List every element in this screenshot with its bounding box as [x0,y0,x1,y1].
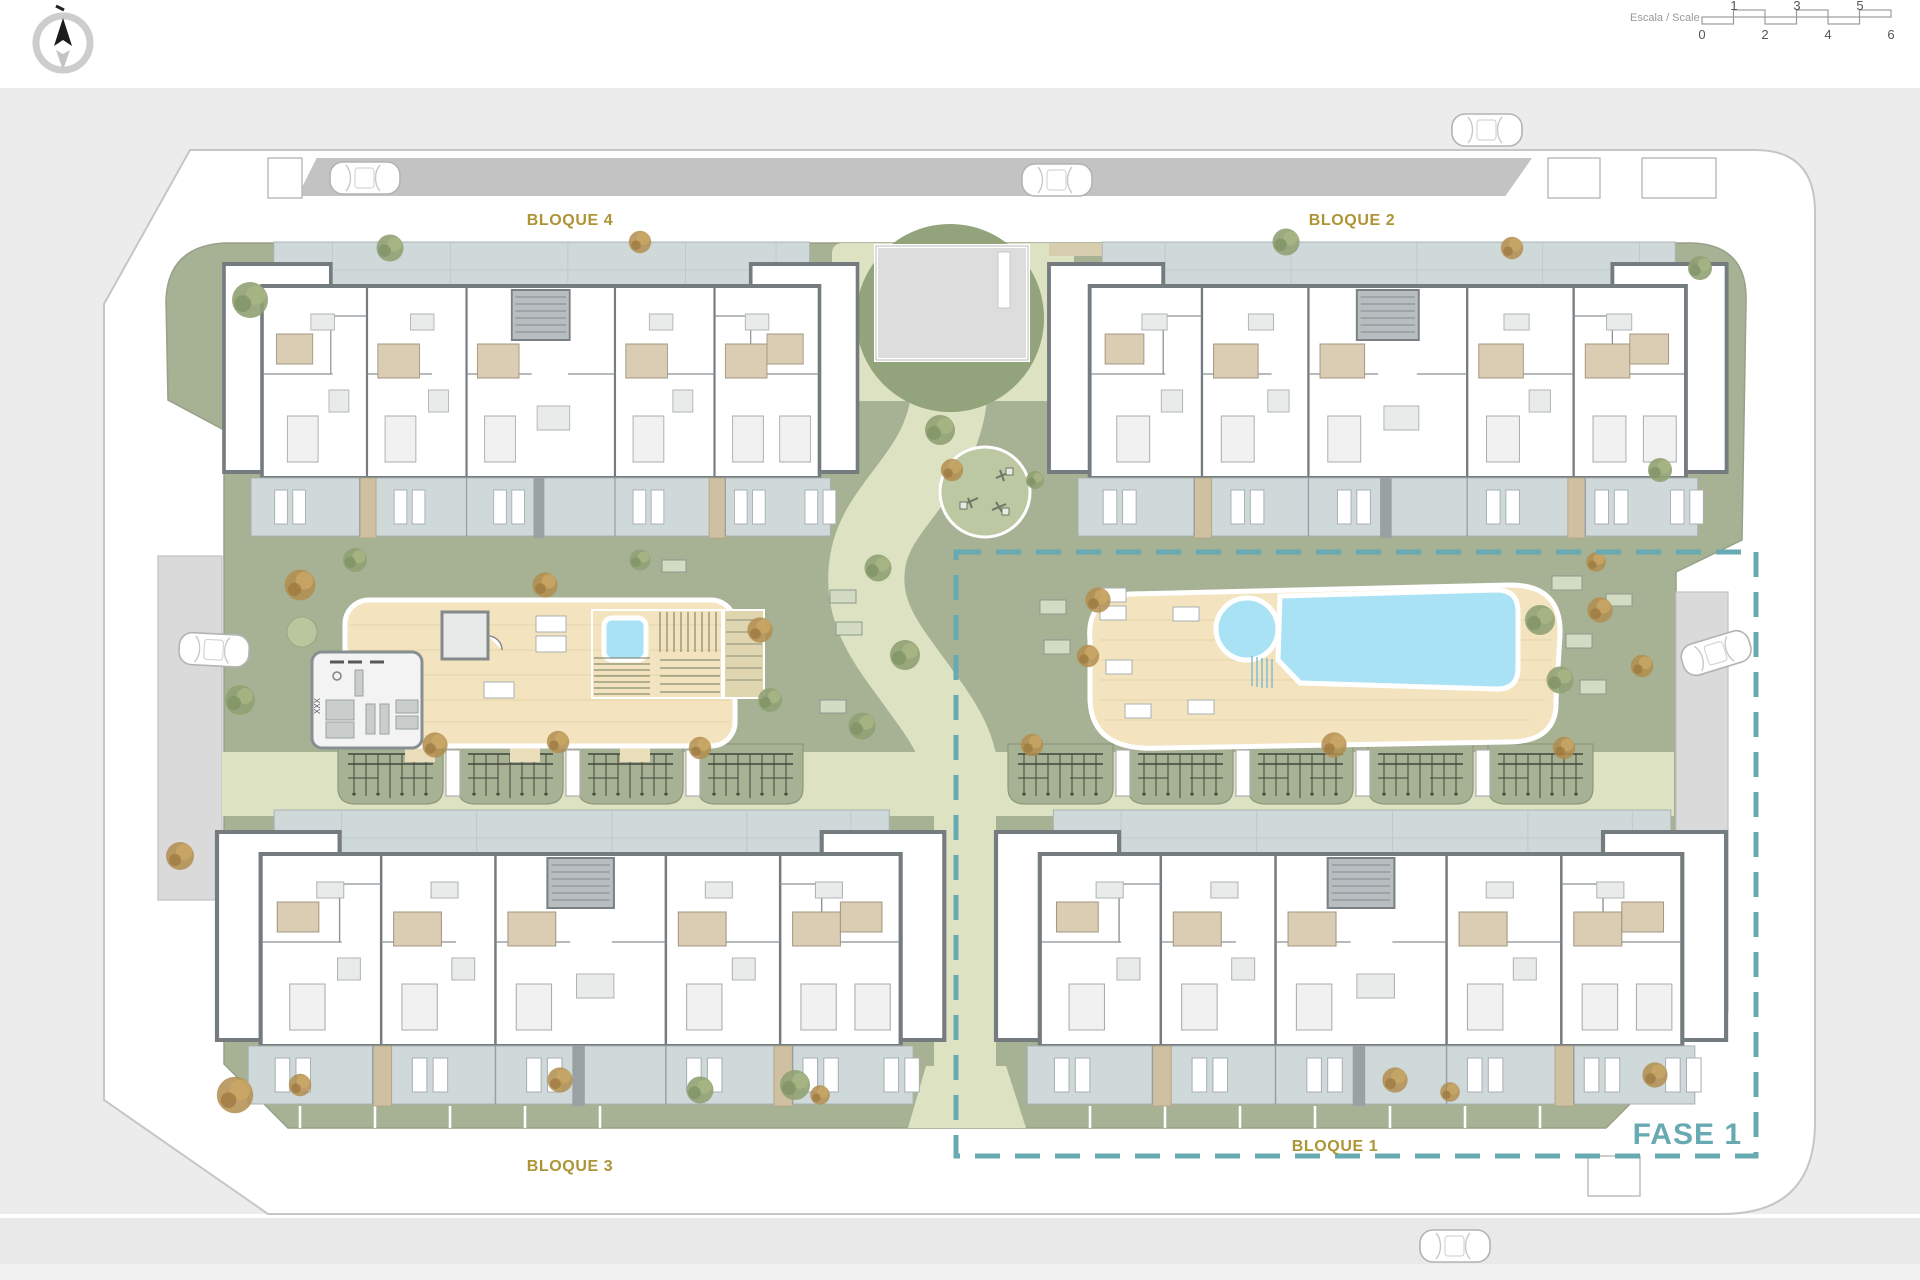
scale-tick: 6 [1884,27,1898,42]
site-plan-page: XXX [0,0,1920,1280]
main-pool [1278,590,1518,689]
jacuzzi-pool [604,618,646,660]
building-bloque-4 [224,242,858,538]
car [330,162,400,194]
site-plan-drawing: XXX [0,0,1920,1280]
car [1420,1230,1490,1262]
label-bloque-3: BLOQUE 3 [480,1158,660,1176]
scale-label: Escala / Scale [1630,12,1700,24]
building-bloque-2 [1049,242,1727,538]
label-bloque-4: BLOQUE 4 [480,212,660,230]
scale-tick: 5 [1853,0,1867,13]
gym-building: XXX [312,652,422,748]
amenity-deck: XXX [287,600,764,762]
label-bloque-2: BLOQUE 2 [1262,212,1442,230]
car [178,632,250,668]
scale-tick: 2 [1758,27,1772,42]
svg-text:XXX: XXX [313,697,322,714]
building-bloque-1 [996,810,1726,1106]
pool-deck [1090,585,1560,748]
scale-tick: 4 [1821,27,1835,42]
top-street [268,157,1716,198]
label-fase-1: FASE 1 [1612,1118,1742,1152]
scale-tick: 0 [1695,27,1709,42]
round-pool [1216,598,1278,660]
building-bloque-3 [217,810,944,1106]
central-plaza [856,224,1044,412]
label-bloque-1: BLOQUE 1 [1245,1138,1425,1156]
car [1022,164,1092,196]
car [1452,114,1522,146]
scale-tick: 3 [1790,0,1804,13]
scale-tick: 1 [1727,0,1741,13]
